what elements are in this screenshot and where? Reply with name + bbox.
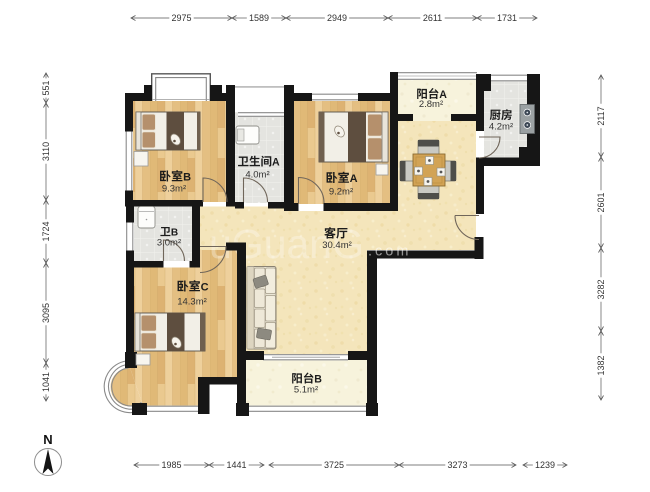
svg-text:1041: 1041 (41, 372, 51, 392)
svg-text:3095: 3095 (41, 303, 51, 323)
svg-text:3110: 3110 (41, 142, 51, 161)
svg-text:3273: 3273 (447, 460, 467, 470)
svg-text:1382: 1382 (596, 355, 606, 375)
svg-text:9.2m²: 9.2m² (329, 187, 353, 198)
svg-text:1239: 1239 (535, 460, 555, 470)
svg-text:1731: 1731 (497, 13, 517, 23)
svg-text:3282: 3282 (596, 279, 606, 299)
svg-text:14.3m²: 14.3m² (177, 297, 207, 308)
svg-text:1985: 1985 (161, 460, 181, 470)
svg-text:1441: 1441 (226, 460, 246, 470)
svg-text:5.1m²: 5.1m² (294, 385, 318, 396)
svg-text:30.4m²: 30.4m² (322, 240, 352, 251)
svg-text:3725: 3725 (324, 460, 344, 470)
svg-text:2601: 2601 (596, 192, 606, 212)
svg-text:2611: 2611 (423, 13, 442, 23)
svg-text:A: A (272, 157, 280, 169)
svg-text:1724: 1724 (41, 221, 51, 241)
svg-text:2.8m²: 2.8m² (419, 99, 443, 110)
svg-text:C: C (201, 282, 209, 294)
svg-text:2949: 2949 (327, 13, 347, 23)
svg-text:2975: 2975 (171, 13, 191, 23)
svg-text:4.2m²: 4.2m² (489, 122, 513, 133)
svg-text:1589: 1589 (249, 13, 269, 23)
svg-text:3.0m²: 3.0m² (157, 238, 181, 249)
svg-text:A: A (350, 173, 358, 185)
svg-text:N: N (43, 432, 52, 447)
svg-text:9.3m²: 9.3m² (162, 184, 186, 195)
svg-text:.com: .com (368, 244, 411, 260)
svg-text:551: 551 (41, 80, 51, 95)
svg-text:B: B (183, 172, 191, 184)
svg-text:2117: 2117 (596, 106, 606, 125)
svg-text:4.0m²: 4.0m² (245, 170, 269, 181)
